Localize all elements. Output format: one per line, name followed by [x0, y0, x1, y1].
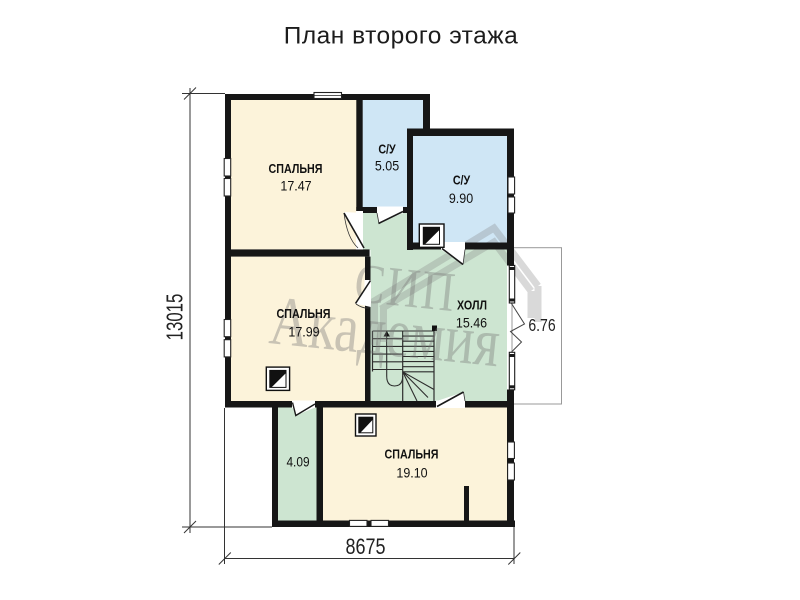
- svg-text:9.90: 9.90: [449, 190, 473, 206]
- svg-text:План второго этажа: План второго этажа: [284, 23, 519, 50]
- svg-text:13015: 13015: [163, 294, 188, 341]
- svg-text:СПАЛЬНЯ: СПАЛЬНЯ: [269, 162, 323, 176]
- svg-text:С/У: С/У: [453, 174, 471, 188]
- svg-text:6.76: 6.76: [528, 315, 555, 335]
- svg-text:СПАЛЬНЯ: СПАЛЬНЯ: [277, 307, 331, 321]
- svg-text:17.99: 17.99: [288, 324, 319, 340]
- svg-text:17.47: 17.47: [280, 178, 311, 194]
- svg-text:15.46: 15.46: [456, 315, 487, 331]
- svg-text:4.09: 4.09: [286, 454, 309, 470]
- svg-text:ХОЛЛ: ХОЛЛ: [457, 299, 487, 313]
- svg-text:СПАЛЬНЯ: СПАЛЬНЯ: [385, 448, 439, 462]
- svg-text:8675: 8675: [345, 535, 385, 559]
- svg-text:С/У: С/У: [378, 143, 396, 157]
- svg-text:5.05: 5.05: [375, 158, 399, 174]
- svg-text:19.10: 19.10: [396, 465, 427, 481]
